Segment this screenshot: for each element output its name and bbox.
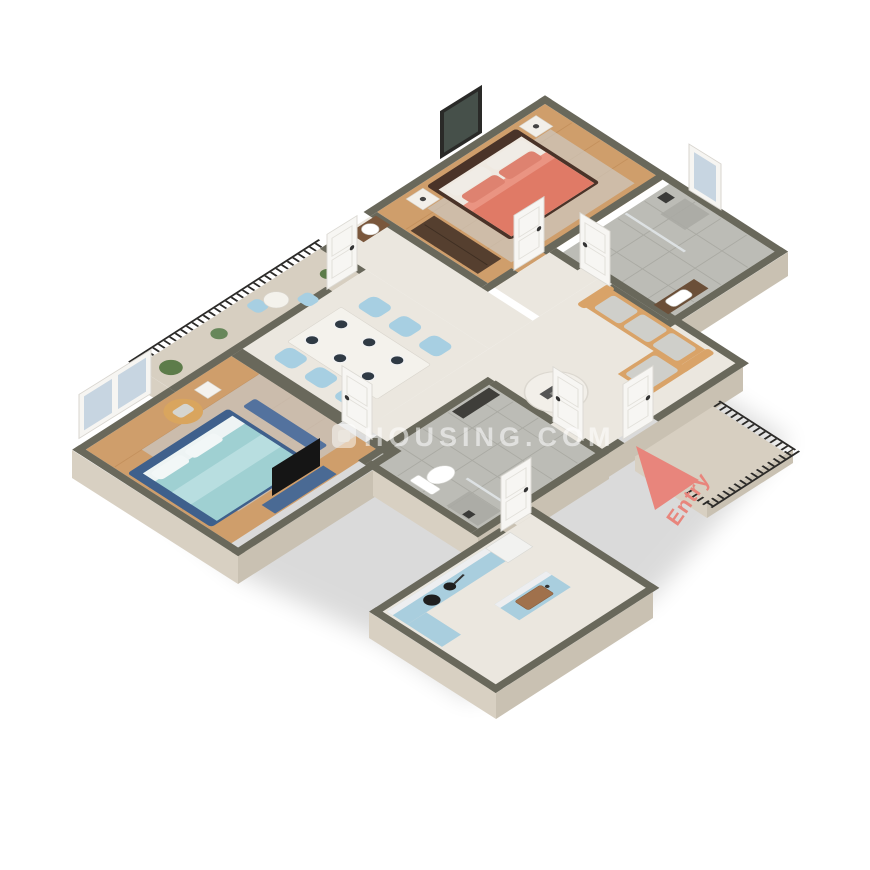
plan [33, 95, 870, 707]
floorplan-image: HOUSING.COM Entry [0, 0, 870, 870]
watermark: HOUSING.COM [332, 422, 616, 452]
watermark-text: HOUSING.COM [364, 422, 616, 452]
floorplan-svg: HOUSING.COM Entry [0, 0, 870, 870]
